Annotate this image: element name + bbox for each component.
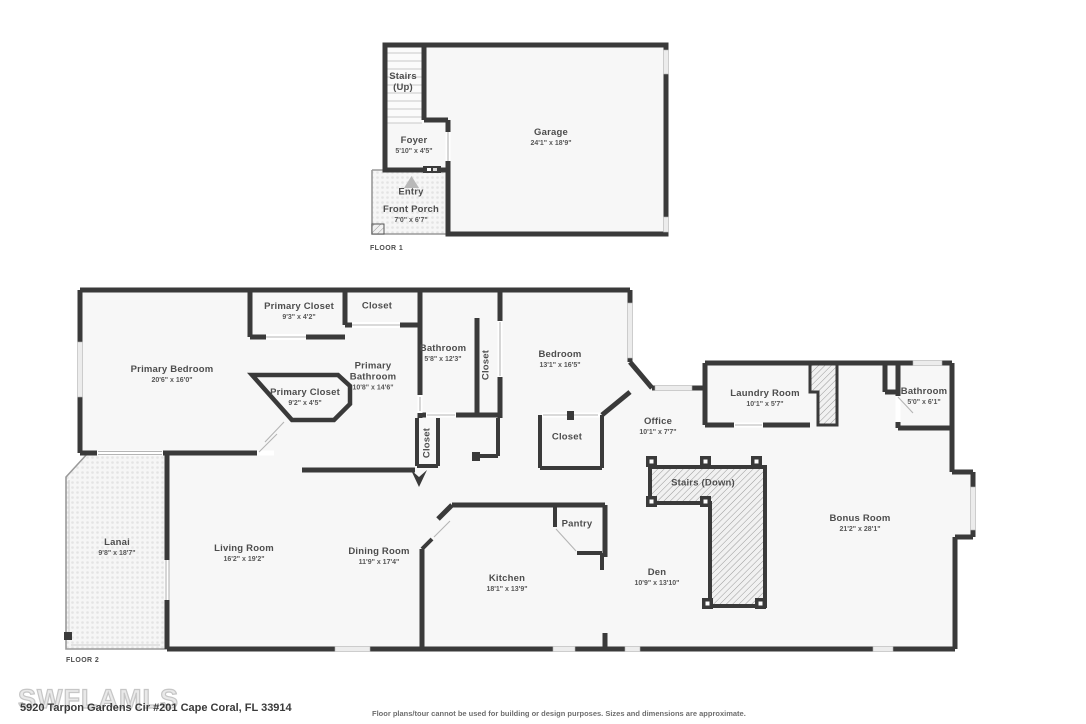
room-label-stairs-down: Stairs (Down) [671, 479, 735, 490]
room-label-bedroom: Bedroom 13'1" x 16'5" [538, 350, 581, 370]
room-label-den: Den 10'9" x 13'10" [634, 568, 679, 588]
floor2-plan [64, 290, 976, 652]
room-label-closet-top: Closet [362, 302, 392, 313]
room-label-primary-closet-top: Primary Closet 9'3" x 4'2" [264, 302, 334, 322]
room-label-closet-bath: Closet [482, 350, 493, 380]
floorplan-page: Stairs (Up) Foyer 5'10" x 4'5" Entry Fro… [0, 0, 1086, 724]
room-label-pantry: Pantry [562, 520, 593, 531]
floor2-tag: FLOOR 2 [66, 657, 99, 664]
room-label-dining: Dining Room 11'9" x 17'4" [348, 547, 409, 567]
hall-post [472, 452, 480, 461]
floor2-footprint [80, 290, 973, 649]
garage-window [664, 50, 669, 74]
room-label-front-porch: Front Porch 7'0" x 6'7" [383, 205, 439, 225]
room-label-closet-mid: Closet [423, 428, 434, 458]
porch-post [372, 224, 384, 234]
room-label-bathroom-right: Bathroom 5'0" x 6'1" [901, 387, 947, 407]
room-label-primary-bedroom: Primary Bedroom 20'6" x 16'0" [131, 365, 214, 385]
entry-threshold-slit2 [433, 168, 437, 171]
room-label-laundry: Laundry Room 10'1" x 5'7" [730, 389, 799, 409]
disclaimer-text: Floor plans/tour cannot be used for buil… [372, 709, 746, 718]
room-label-stairs-up: Stairs (Up) [389, 72, 417, 94]
room-label-primary-bathroom: Primary Bathroom 10'8" x 14'6" [350, 362, 396, 393]
room-label-lanai: Lanai 9'8" x 18'7" [98, 538, 135, 558]
room-label-closet-hall: Closet [552, 433, 582, 444]
lanai-post [64, 632, 72, 640]
room-label-living: Living Room 16'2" x 19'2" [214, 544, 274, 564]
entry-threshold [423, 166, 441, 173]
floor1-tag: FLOOR 1 [370, 245, 403, 252]
property-address: 5920 Tarpon Gardens Cir #201 Cape Coral,… [20, 702, 292, 714]
garage-window [664, 217, 669, 232]
closet-door-post [567, 411, 574, 420]
room-label-entry: Entry [398, 188, 423, 199]
entry-threshold-slit [427, 168, 431, 171]
room-label-foyer: Foyer 5'10" x 4'5" [395, 136, 432, 156]
room-label-bathroom-mid: Bathroom 5'8" x 12'3" [420, 344, 466, 364]
room-label-office: Office 10'1" x 7'7" [639, 417, 676, 437]
room-label-bonus: Bonus Room 21'2" x 28'1" [829, 514, 890, 534]
room-label-garage: Garage 24'1" x 18'9" [530, 128, 571, 148]
room-label-kitchen: Kitchen 18'1" x 13'9" [486, 574, 527, 594]
room-label-primary-closet-lower: Primary Closet 9'2" x 4'5" [270, 388, 340, 408]
